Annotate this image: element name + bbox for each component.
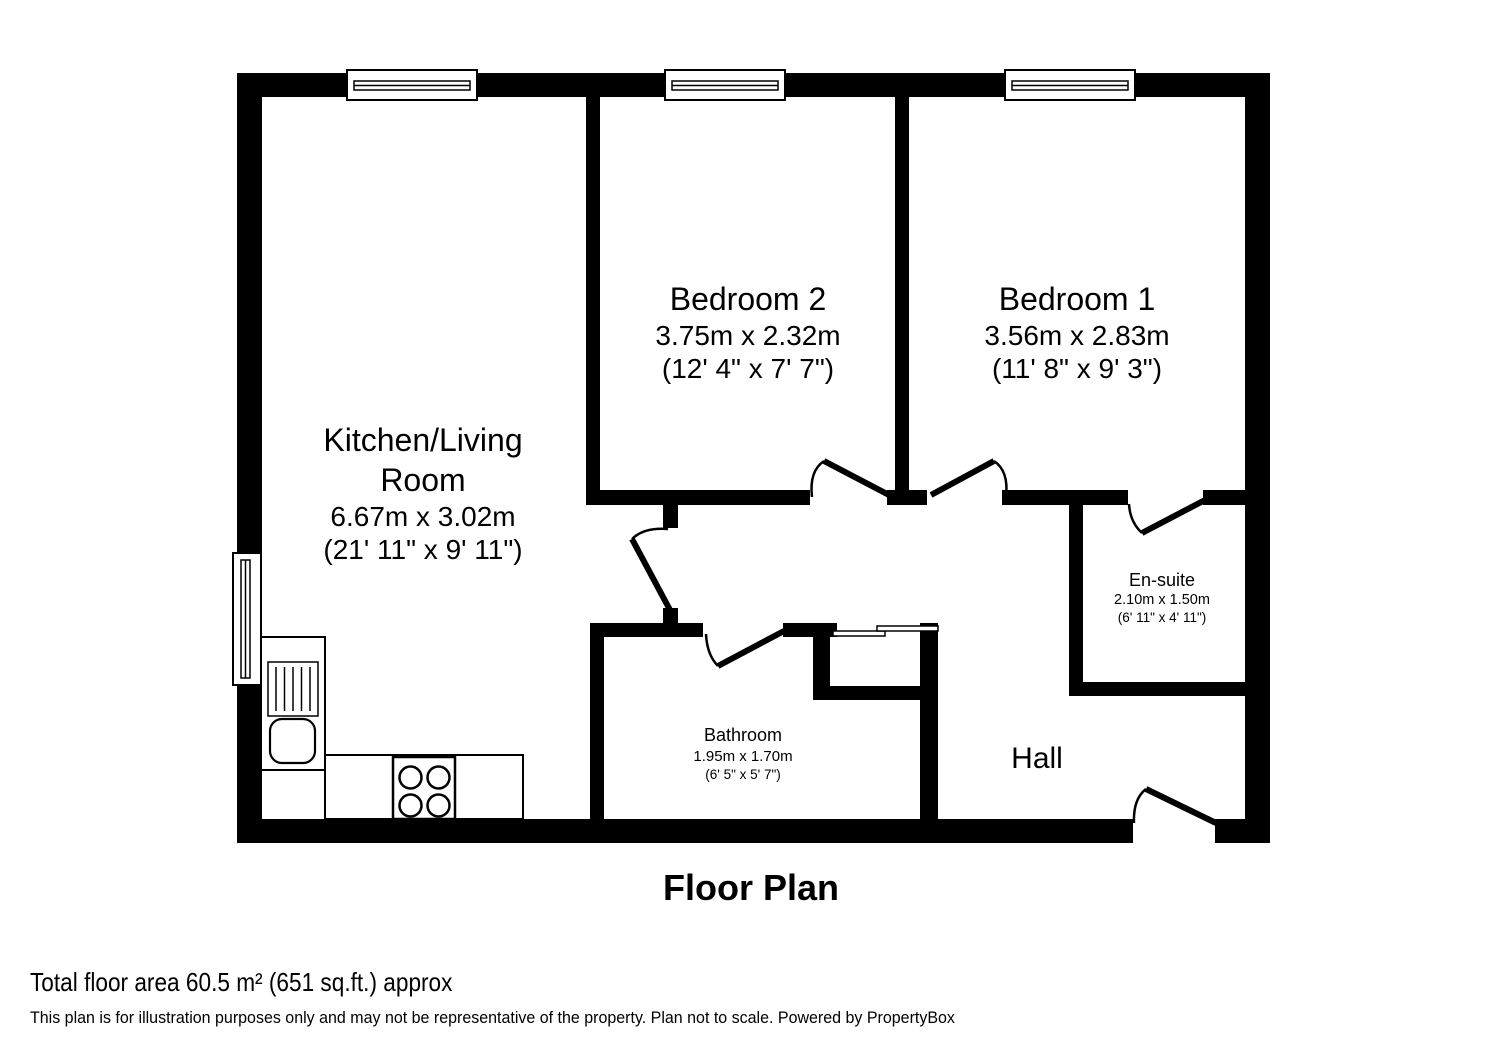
room-label-bedroom2: Bedroom 2 3.75m x 2.32m (12' 4" x 7' 7") [598, 279, 898, 385]
door-icon-bedroom2 [812, 461, 890, 497]
outer-wall-left [237, 73, 262, 843]
window-icon-bedroom2 [665, 70, 785, 100]
room-name: Bedroom 2 [598, 279, 898, 319]
wall-cupboard-bottom [813, 686, 938, 700]
wall-kitchen-door-stub-bottom [663, 608, 678, 625]
wall-kitchen-door-stub-top [663, 505, 678, 528]
window-icon-bedroom1 [1005, 70, 1135, 100]
room-label-bedroom1: Bedroom 1 3.56m x 2.83m (11' 8" x 9' 3") [925, 279, 1229, 385]
room-name: Kitchen/Living [273, 420, 573, 460]
wall-bathroom-top-left [590, 623, 703, 637]
wall-bedroom1-bottom-left [1002, 490, 1128, 505]
wall-ensuite-left [1069, 500, 1083, 690]
window-icon-kitchen-top [347, 70, 477, 100]
room-dim-metric: 6.67m x 3.02m [273, 500, 573, 533]
door-icon-kitchen [632, 529, 670, 610]
room-label-ensuite: En-suite 2.10m x 1.50m (6' 11" x 4' 11") [1087, 569, 1237, 626]
wall-bedroom1-bottom-right [1203, 490, 1245, 505]
entrance-opening [1133, 816, 1215, 846]
plan-title: Floor Plan [600, 868, 902, 908]
room-name: Bedroom 1 [925, 279, 1229, 319]
room-dim-metric: 1.95m x 1.70m [615, 747, 871, 766]
room-dim-imperial: (11' 8" x 9' 3") [925, 352, 1229, 385]
wall-bedroom2-bottom [586, 490, 810, 505]
wall-bathroom-top-right [783, 623, 837, 637]
room-dim-metric: 3.56m x 2.83m [925, 319, 1229, 352]
total-floor-area-text: Total floor area 60.5 m² (651 sq.ft.) ap… [30, 967, 452, 997]
disclaimer-text: This plan is for illustration purposes o… [30, 1008, 955, 1028]
outer-wall-bottom [237, 819, 1270, 843]
room-dim-imperial: (12' 4" x 7' 7") [598, 352, 898, 385]
window-icon-kitchen-left [233, 553, 261, 685]
room-name: En-suite [1087, 569, 1237, 591]
room-label-kitchen-living: Kitchen/Living Room 6.67m x 3.02m (21' 1… [273, 420, 573, 566]
floor-plan-page: Kitchen/Living Room 6.67m x 3.02m (21' 1… [0, 0, 1500, 1050]
room-label-hall: Hall [957, 742, 1117, 776]
outer-wall-right [1245, 73, 1270, 843]
stove-icon [393, 757, 455, 819]
room-name-line2: Room [273, 460, 573, 500]
room-name: Hall [957, 742, 1117, 776]
door-icon-bathroom [706, 631, 784, 666]
wall-bathroom-left [590, 623, 604, 819]
room-name: Bathroom [615, 724, 871, 747]
door-icon-ensuite [1129, 500, 1205, 533]
door-icon-bedroom1 [931, 461, 1007, 497]
room-dim-imperial: (21' 11" x 9' 11") [273, 533, 573, 566]
room-dim-metric: 3.75m x 2.32m [598, 319, 898, 352]
interior-walls [586, 95, 1245, 819]
wall-ensuite-bottom [1069, 682, 1245, 696]
room-dim-imperial: (6' 5" x 5' 7") [615, 766, 871, 783]
room-dim-imperial: (6' 11" x 4' 11") [1087, 609, 1237, 626]
wall-center-stub [887, 490, 927, 505]
room-dim-metric: 2.10m x 1.50m [1087, 591, 1237, 609]
room-label-bathroom: Bathroom 1.95m x 1.70m (6' 5" x 5' 7") [615, 724, 871, 783]
wall-bathroom-right [920, 623, 938, 819]
